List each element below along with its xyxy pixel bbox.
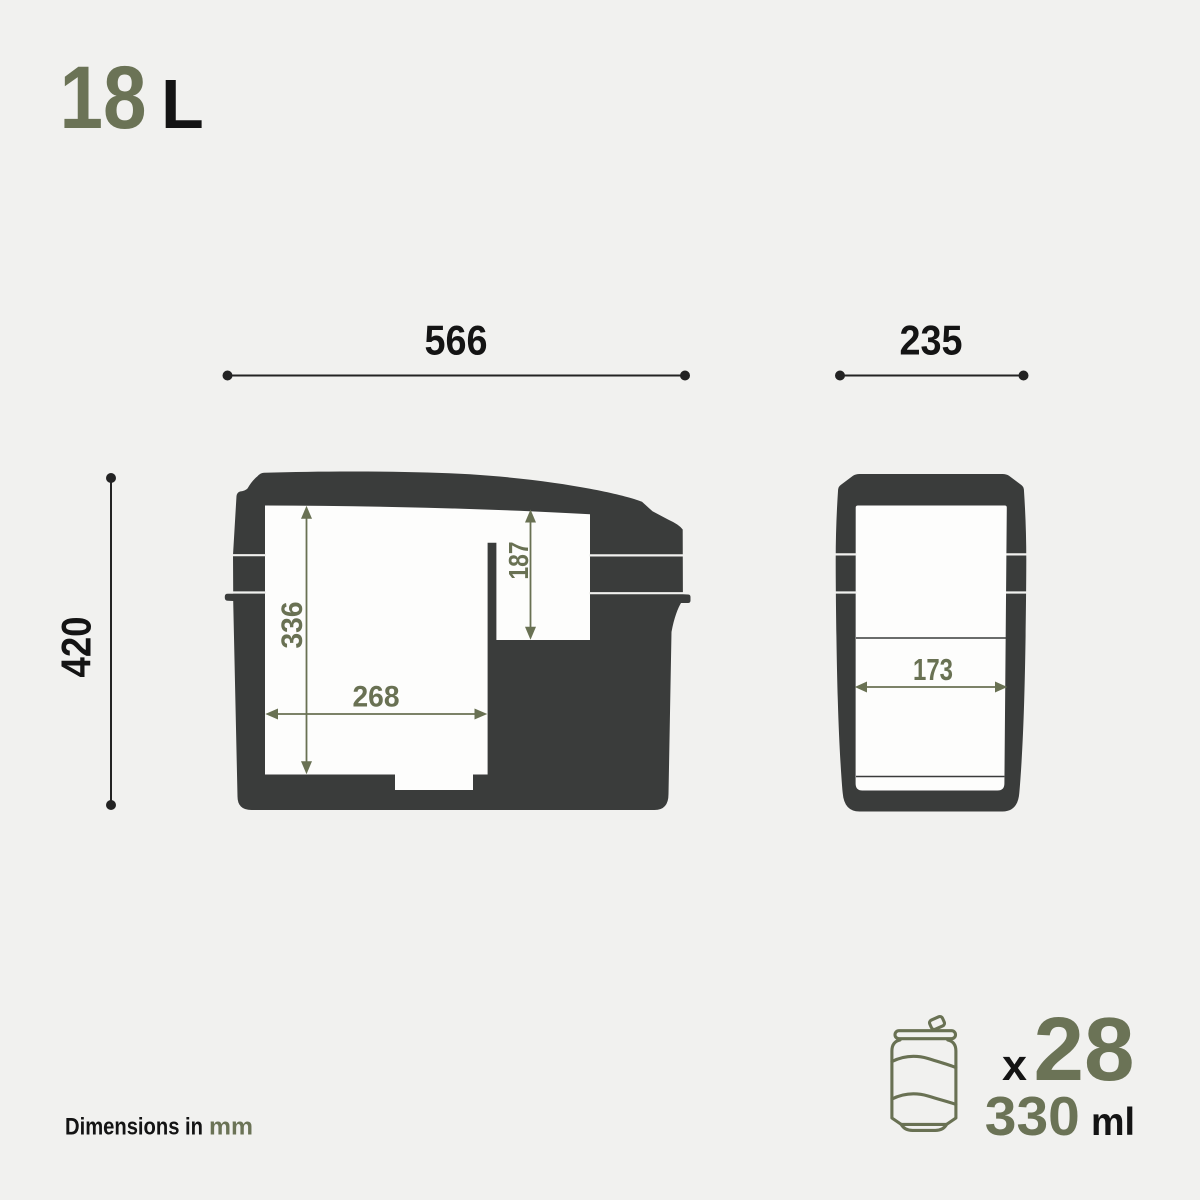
svg-text:330: 330 <box>985 1085 1080 1147</box>
svg-text:336: 336 <box>276 602 309 649</box>
svg-text:187: 187 <box>503 542 534 580</box>
svg-text:x: x <box>1002 1041 1028 1090</box>
svg-text:566: 566 <box>425 317 488 364</box>
svg-text:268: 268 <box>353 681 400 714</box>
svg-text:mm: mm <box>209 1114 253 1141</box>
svg-text:L: L <box>161 65 204 143</box>
svg-text:18: 18 <box>60 47 147 147</box>
svg-text:ml: ml <box>1091 1101 1135 1144</box>
svg-text:420: 420 <box>53 617 100 678</box>
svg-text:235: 235 <box>900 317 963 364</box>
svg-text:Dimensions in: Dimensions in <box>65 1114 203 1141</box>
svg-text:173: 173 <box>913 652 953 687</box>
